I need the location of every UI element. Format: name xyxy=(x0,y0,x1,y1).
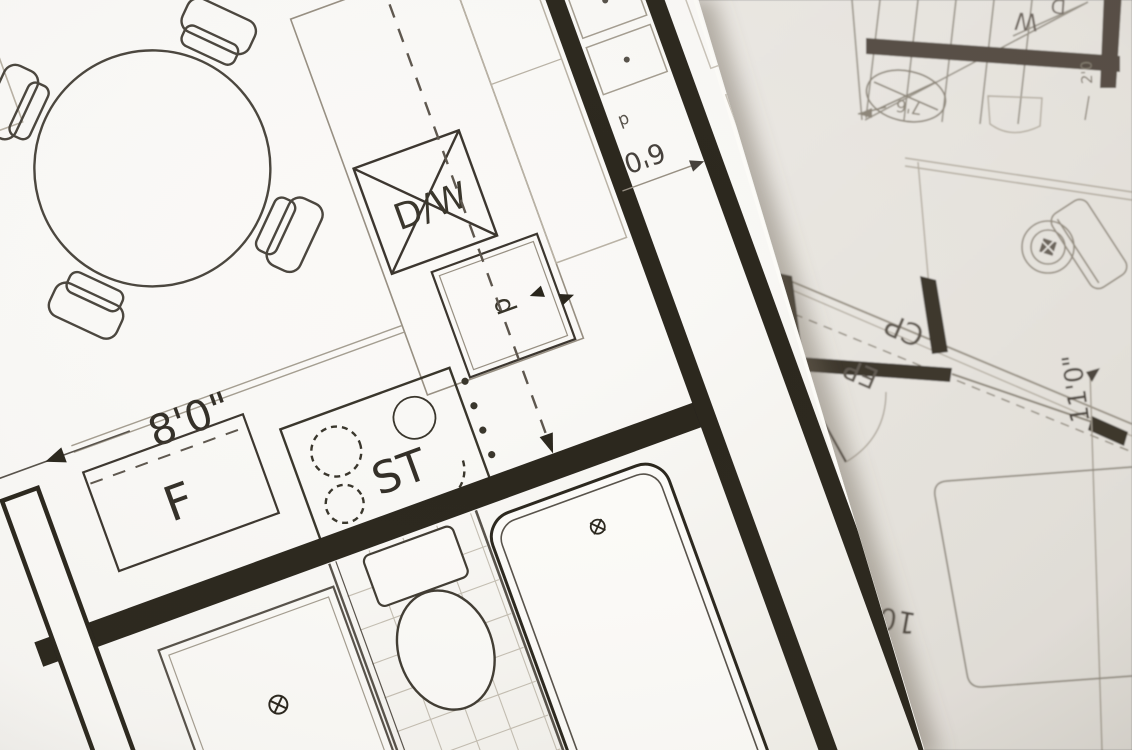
photo-vignette xyxy=(0,0,1132,750)
blueprint-canvas: W D 7'6 2'0 xyxy=(0,0,1132,750)
blueprint-photo: W D 7'6 2'0 xyxy=(0,0,1132,750)
